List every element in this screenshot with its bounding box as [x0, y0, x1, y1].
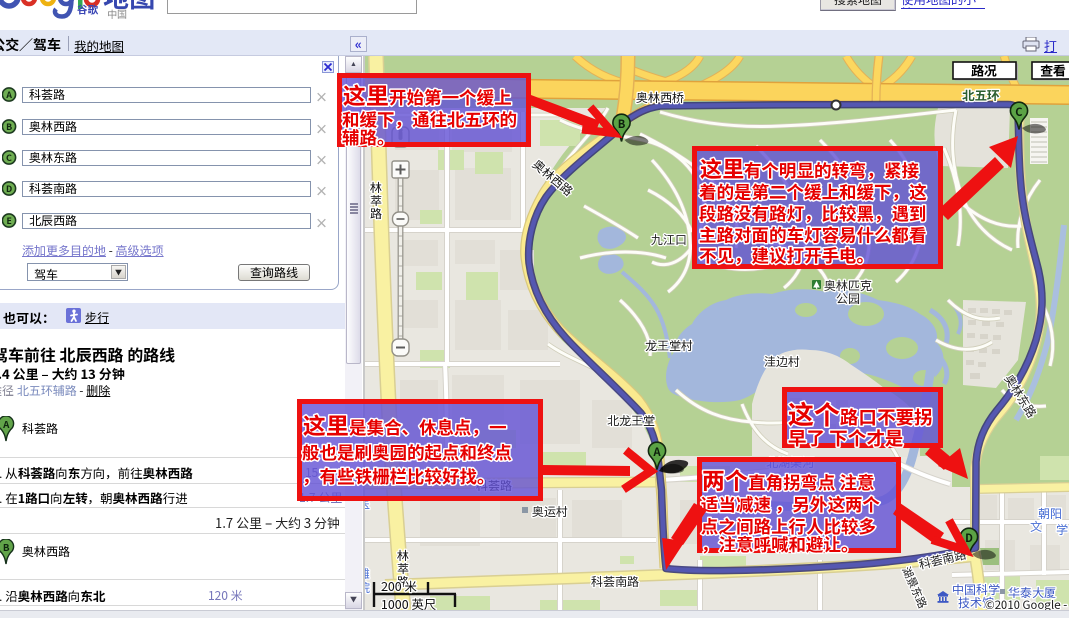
svg-text:早了 下个才是: 早了 下个才是 [788, 425, 904, 451]
svg-text:，注意呼喊和避让。: ，注意呼喊和避让。 [701, 532, 859, 557]
svg-text:辅路。: 辅路。 [342, 125, 395, 150]
svg-text:不见，建议打开手电。: 不见，建议打开手电。 [699, 243, 874, 268]
svg-text:，有些铁栅栏比较好找。: ，有些铁栅栏比较好找。 [302, 464, 495, 489]
svg-text:般也是刷奥园的起点和终点: 般也是刷奥园的起点和终点 [302, 440, 512, 465]
